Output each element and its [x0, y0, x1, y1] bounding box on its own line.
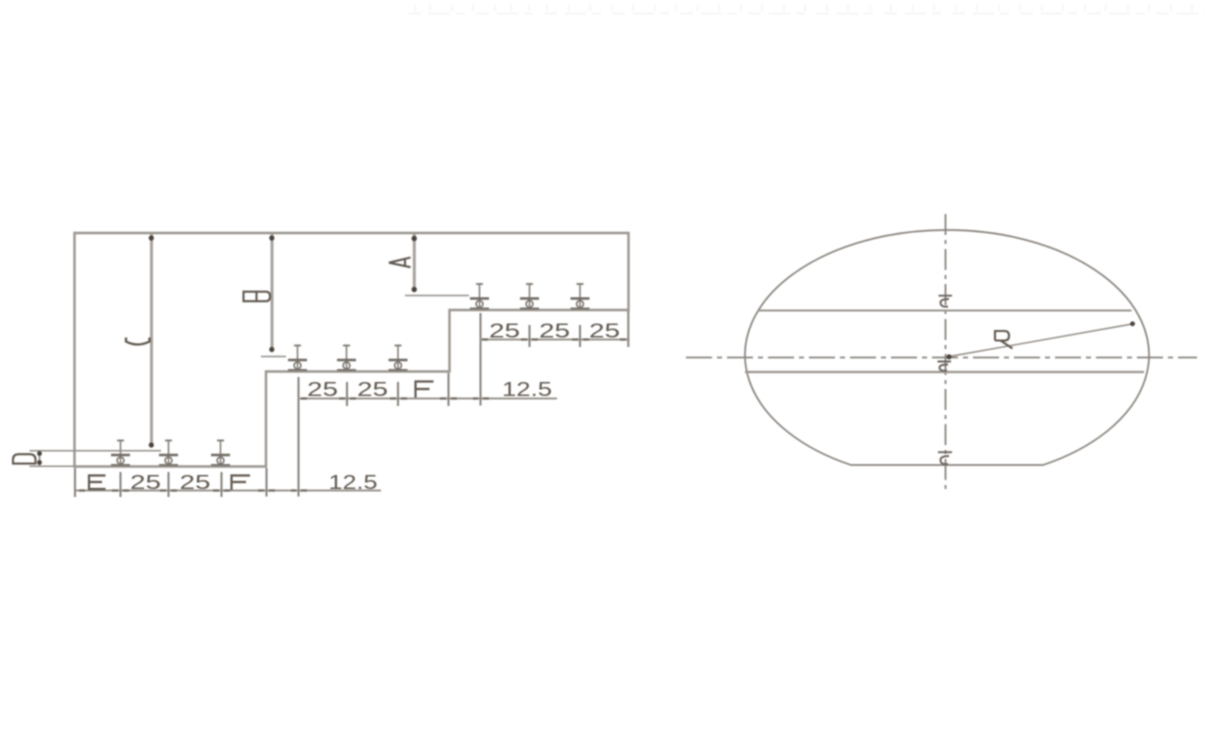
svg-text:25: 25: [357, 379, 388, 401]
svg-text:12.5: 12.5: [502, 379, 552, 401]
svg-text:12.5: 12.5: [329, 472, 378, 494]
svg-text:25: 25: [307, 379, 338, 401]
svg-text:25: 25: [489, 321, 520, 343]
svg-text:25: 25: [130, 472, 161, 494]
svg-text:25: 25: [539, 321, 570, 343]
svg-text:25: 25: [180, 472, 211, 494]
svg-text:25: 25: [589, 321, 620, 343]
